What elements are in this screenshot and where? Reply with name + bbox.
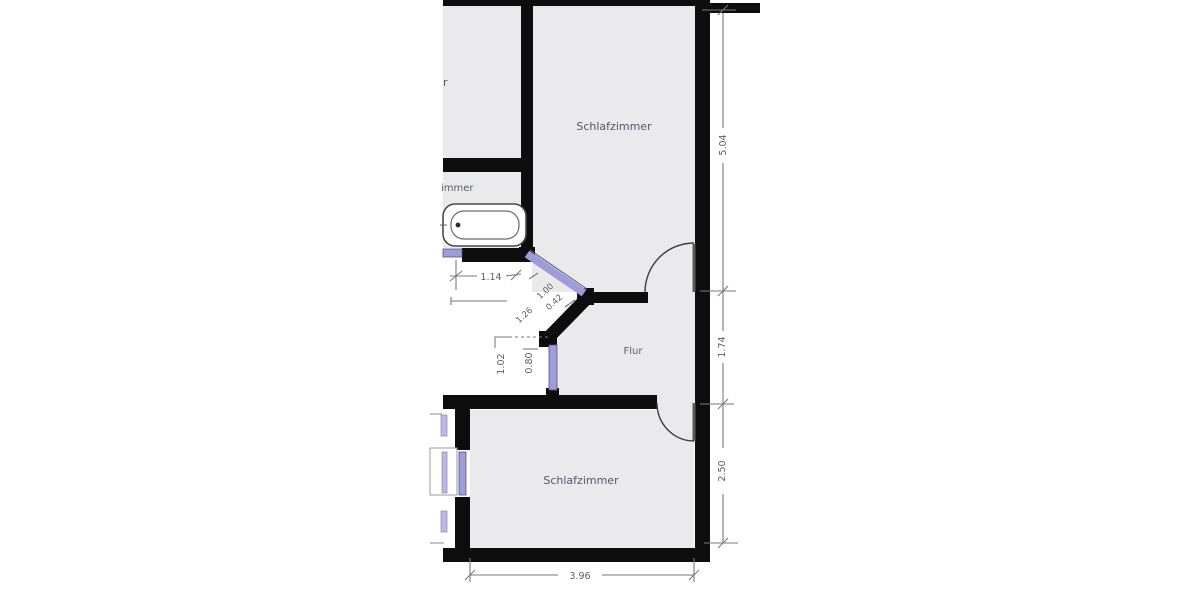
adjacent-window-strip-3 — [441, 511, 447, 532]
wall-right — [695, 3, 710, 562]
bathtub-drain — [456, 223, 461, 228]
adjacent-window-strip-1 — [441, 415, 447, 436]
room-label-bedroom-top: Schlafzimmer — [576, 120, 652, 133]
bathtub — [440, 204, 526, 246]
room-label-hallway: Flur — [624, 346, 644, 357]
dim-label-3-96: 3.96 — [569, 571, 590, 582]
wall-bathroom-top — [443, 158, 532, 172]
wall-top — [443, 0, 710, 6]
window-niche — [549, 345, 557, 390]
wall-hallway-top — [585, 292, 648, 303]
dim-line-1-14 — [506, 274, 521, 276]
left-edge-fragments — [430, 414, 457, 543]
room-label-fragment-left-top: r — [443, 76, 448, 89]
window-bedroom-bottom — [459, 452, 466, 495]
dim-label-1-26: 1.26 — [514, 306, 535, 326]
door-opening-floor — [657, 400, 694, 411]
floorplan-canvas: Schlafzimmer Schlafzimmer Flur r immer 5… — [0, 0, 1200, 600]
wall-hallway-bottom — [443, 395, 657, 409]
dim-label-1-74: 1.74 — [717, 336, 728, 357]
room-floor-left-top — [443, 4, 521, 158]
dim-label-1-14: 1.14 — [480, 272, 501, 283]
room-label-fragment-bathroom: immer — [441, 183, 474, 194]
adjacent-window-strip-2 — [442, 452, 447, 493]
niche-hook — [495, 337, 509, 348]
dim-label-0-80: 0.80 — [524, 352, 535, 373]
window-bathroom-left — [443, 249, 462, 257]
bathtub-inner — [451, 211, 519, 239]
dim-label-1-02: 1.02 — [496, 353, 507, 374]
dim-label-5-04: 5.04 — [718, 134, 729, 155]
room-label-bedroom-bottom: Schlafzimmer — [543, 474, 619, 487]
wall-bottom — [443, 548, 710, 562]
dim-label-2-50: 2.50 — [717, 460, 728, 481]
floorplan-svg: Schlafzimmer Schlafzimmer Flur r immer 5… — [0, 0, 1200, 600]
